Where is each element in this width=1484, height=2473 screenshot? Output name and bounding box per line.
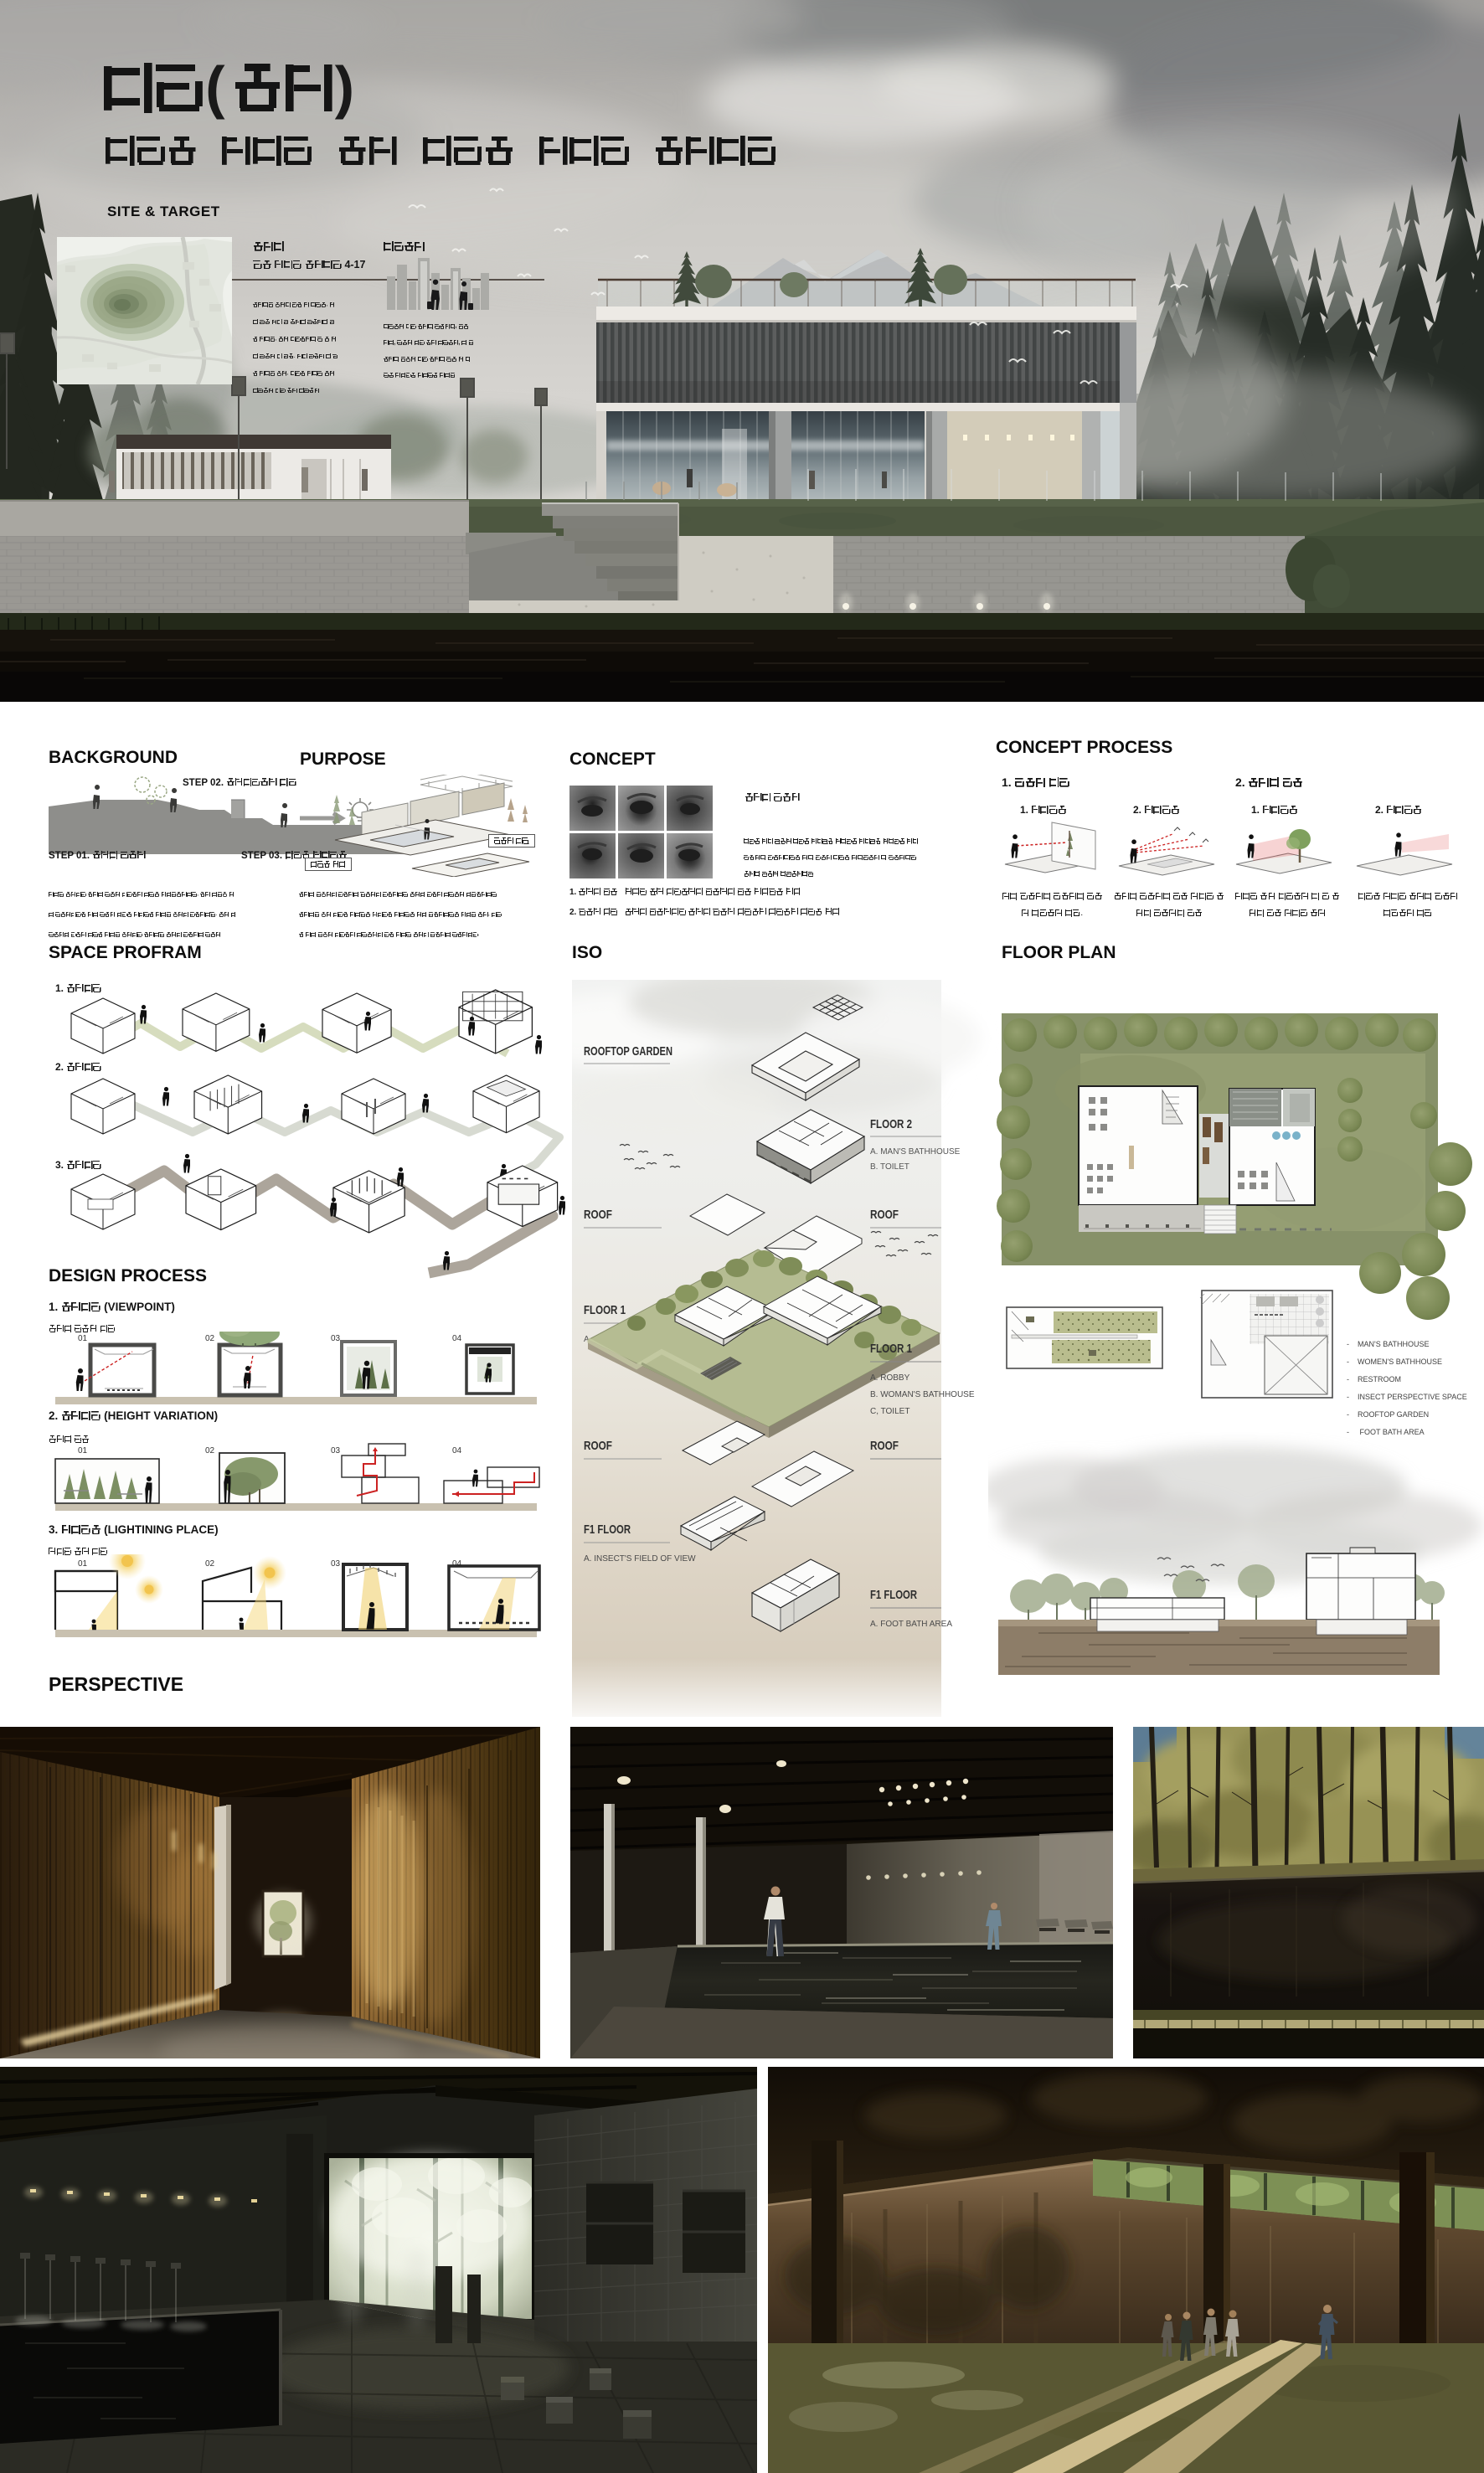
svg-text:A. INSECT'S FIELD OF VIEW: A. INSECT'S FIELD OF VIEW xyxy=(584,1554,696,1564)
svg-text:- ROOFTOP GARDEN: - ROOFTOP GARDEN xyxy=(1347,1410,1429,1419)
svg-text:ROOF: ROOF xyxy=(584,1208,612,1222)
svg-text:04: 04 xyxy=(452,1446,462,1455)
svg-text:F1 FLOOR: F1 FLOOR xyxy=(870,1588,917,1602)
svg-text:01: 01 xyxy=(78,1559,88,1569)
svg-text:B. WOMAN'S BATHHOUSE: B. WOMAN'S BATHHOUSE xyxy=(870,1390,975,1399)
svg-text:02: 02 xyxy=(205,1446,215,1455)
svg-text:ROOF: ROOF xyxy=(870,1208,899,1222)
svg-text:03: 03 xyxy=(331,1446,341,1455)
svg-text:- FOOT BATH AREA: - FOOT BATH AREA xyxy=(1347,1428,1425,1436)
svg-text:- RESTROOM: - RESTROOM xyxy=(1347,1375,1401,1383)
svg-text:B. TOILET: B. TOILET xyxy=(870,1162,909,1172)
svg-text:ROOFTOP GARDEN: ROOFTOP GARDEN xyxy=(584,1044,672,1059)
svg-text:ROOF: ROOF xyxy=(584,1439,612,1453)
svg-text:02: 02 xyxy=(205,1334,215,1343)
svg-text:C, TOILET: C, TOILET xyxy=(870,1407,909,1416)
svg-text:A. MAN'S BATHHOUSE: A. MAN'S BATHHOUSE xyxy=(870,1147,961,1157)
svg-text:FLOOR 1: FLOOR 1 xyxy=(870,1342,912,1356)
svg-text:02: 02 xyxy=(205,1559,215,1569)
svg-text:- MAN'S BATHHOUSE: - MAN'S BATHHOUSE xyxy=(1347,1340,1430,1348)
svg-text:01: 01 xyxy=(78,1334,88,1343)
svg-text:A. ROBBY: A. ROBBY xyxy=(870,1373,910,1383)
svg-text:ROOF: ROOF xyxy=(870,1439,899,1453)
svg-text:- WOMEN'S BATHHOUSE: - WOMEN'S BATHHOUSE xyxy=(1347,1358,1442,1366)
svg-text:04: 04 xyxy=(452,1334,462,1343)
svg-text:F1 FLOOR: F1 FLOOR xyxy=(584,1522,631,1537)
svg-text:01: 01 xyxy=(78,1446,88,1455)
svg-text:- INSECT PERSPECTIVE SPACE: - INSECT PERSPECTIVE SPACE xyxy=(1347,1393,1467,1401)
svg-text:A. FOOT BATH AREA: A. FOOT BATH AREA xyxy=(870,1620,952,1629)
svg-text:03: 03 xyxy=(331,1334,341,1343)
svg-text:FLOOR 1: FLOOR 1 xyxy=(584,1303,626,1317)
svg-text:03: 03 xyxy=(331,1559,341,1569)
svg-text:FLOOR 2: FLOOR 2 xyxy=(870,1117,912,1131)
